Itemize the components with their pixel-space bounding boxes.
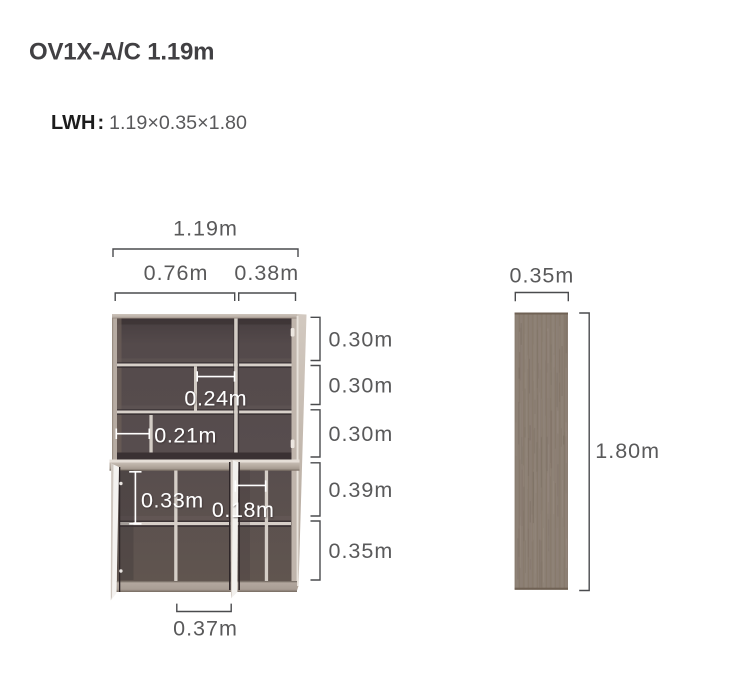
svg-text:0.35m: 0.35m	[510, 263, 575, 287]
svg-text:1.19m: 1.19m	[173, 217, 238, 241]
svg-text:0.30m: 0.30m	[329, 328, 394, 352]
svg-text:1.19×0.35×1.80: 1.19×0.35×1.80	[109, 112, 247, 134]
svg-text:0.33m: 0.33m	[141, 489, 204, 513]
svg-text:0.38m: 0.38m	[234, 261, 299, 285]
svg-text:OV1X-A/C 1.19m: OV1X-A/C 1.19m	[29, 39, 214, 66]
svg-text:0.18m: 0.18m	[212, 498, 275, 522]
svg-text:0.24m: 0.24m	[184, 386, 247, 410]
svg-text:0.39m: 0.39m	[329, 478, 394, 502]
svg-text:0.37m: 0.37m	[173, 616, 238, 640]
svg-text:0.30m: 0.30m	[329, 374, 394, 398]
svg-text:0.21m: 0.21m	[154, 424, 217, 448]
svg-text:1.80m: 1.80m	[595, 439, 660, 463]
svg-text:0.76m: 0.76m	[144, 261, 209, 285]
svg-text:0.30m: 0.30m	[329, 422, 394, 446]
svg-text:0.35m: 0.35m	[329, 539, 394, 563]
svg-text:LWH:: LWH:	[51, 112, 104, 134]
